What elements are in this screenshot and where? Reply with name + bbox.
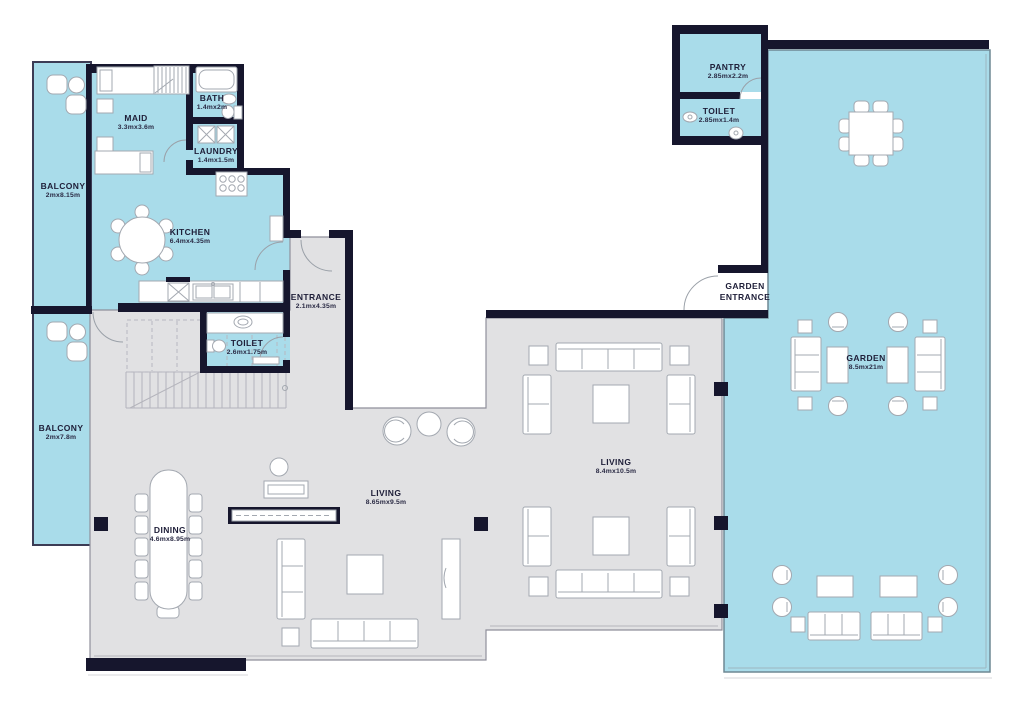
room-label-bath: BATH 1.4mx2m [197,93,228,113]
room-name: GARDEN ENTRANCE [713,281,777,303]
room-label-balcony-lower: BALCONY 2mx7.8m [39,423,84,443]
room-dims: 8.65mx9.5m [366,499,407,508]
room-dims: 2.1mx4.35m [291,303,341,312]
room-label-garden-entrance: GARDEN ENTRANCE [713,281,777,303]
room-dims: 2.85mx1.4m [699,117,740,126]
room-dims: 2mx7.8m [39,434,84,443]
room-label-toilet-garden: TOILET 2.85mx1.4m [699,106,740,126]
room-dims: 8.4mx10.5m [596,468,637,477]
room-name: LIVING [366,488,407,499]
room-dims: 6.4mx4.35m [170,238,211,247]
room-label-living-left: LIVING 8.65mx9.5m [366,488,407,508]
room-label-dining: DINING 4.6mx8.95m [150,525,191,545]
room-dims: 1.4mx1.5m [194,157,238,166]
room-label-laundry: LAUNDRY 1.4mx1.5m [194,146,238,166]
room-dims: 2mx8.15m [41,192,86,201]
room-name: MAID [118,113,155,124]
room-name: PANTRY [708,62,749,73]
room-dims: 1.4mx2m [197,104,228,113]
room-label-entrance: ENTRANCE 2.1mx4.35m [291,292,341,312]
room-name: BALCONY [39,423,84,434]
room-dims: 2.6mx1.75m [227,349,268,358]
room-name: BALCONY [41,181,86,192]
room-name: KITCHEN [170,227,211,238]
room-name: LAUNDRY [194,146,238,157]
room-label-pantry: PANTRY 2.85mx2.2m [708,62,749,82]
floor-plan: BALCONY 2mx8.15m MAID 3.3mx3.6m BATH 1.4… [0,0,1024,702]
room-label-kitchen: KITCHEN 6.4mx4.35m [170,227,211,247]
room-label-garden: GARDEN 8.5mx21m [846,353,885,373]
room-name: DINING [150,525,191,536]
room-dims: 8.5mx21m [846,364,885,373]
room-dims: 4.6mx8.95m [150,536,191,545]
room-label-balcony-upper: BALCONY 2mx8.15m [41,181,86,201]
room-name: TOILET [227,338,268,349]
room-name: LIVING [596,457,637,468]
room-label-living-right: LIVING 8.4mx10.5m [596,457,637,477]
room-label-toilet-main: TOILET 2.6mx1.75m [227,338,268,358]
room-name: ENTRANCE [291,292,341,303]
room-name: GARDEN [846,353,885,364]
room-name: BATH [197,93,228,104]
room-dims: 2.85mx2.2m [708,73,749,82]
room-label-maid: MAID 3.3mx3.6m [118,113,155,133]
floor-plan-canvas [0,0,1024,702]
room-name: TOILET [699,106,740,117]
room-dims: 3.3mx3.6m [118,124,155,133]
